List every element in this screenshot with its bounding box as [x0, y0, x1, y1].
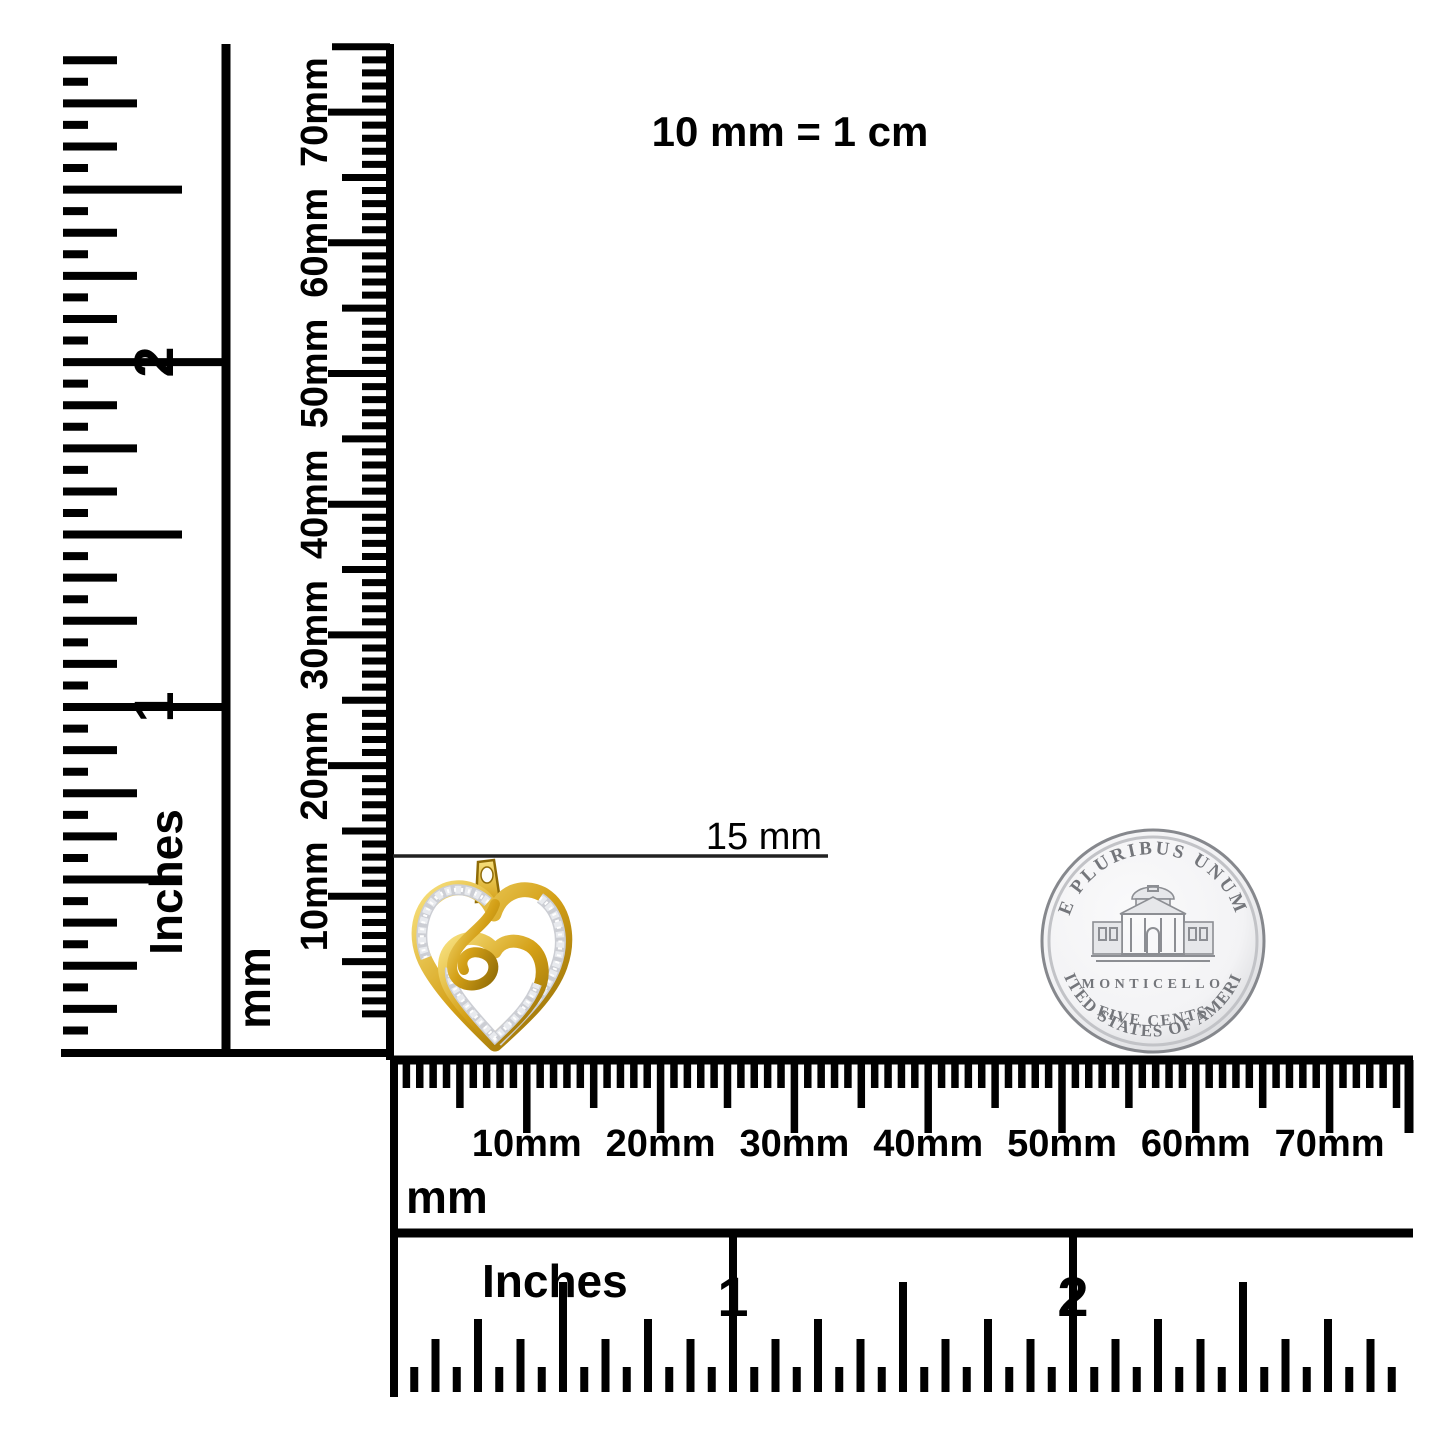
gold-diamond-heart-pendant [419, 860, 565, 1044]
bottom-inches-unit-label: Inches [482, 1255, 628, 1307]
bottom-inch-number: 1 [717, 1265, 748, 1328]
bottom-mm-label: 40mm [873, 1123, 983, 1165]
pendant-bail-hole [481, 867, 493, 883]
left-mm-label: 20mm [294, 711, 336, 821]
measurement-diagram: 12 Inches 10mm20mm30mm40mm50mm60mm70mm m… [0, 0, 1445, 1445]
left-mm-label: 70mm [294, 57, 336, 167]
bottom-mm-label: 60mm [1141, 1123, 1251, 1165]
scale-note: 10 mm = 1 cm [652, 108, 929, 155]
left-mm-unit-label: mm [228, 947, 280, 1029]
bottom-mm-label: 10mm [472, 1123, 582, 1165]
bottom-mm-label: 20mm [606, 1123, 716, 1165]
ruler-left-mm: 10mm20mm30mm40mm50mm60mm70mm mm [228, 44, 390, 1060]
bottom-mm-label: 30mm [739, 1123, 849, 1165]
coin-building-label: MONTICELLO [1081, 977, 1224, 992]
bottom-mm-label: 70mm [1275, 1123, 1385, 1165]
ruler-bottom-mm: 10mm20mm30mm40mm50mm60mm70mm mm [391, 1056, 1413, 1234]
left-mm-label: 60mm [294, 188, 336, 298]
bottom-mm-labels: 10mm20mm30mm40mm50mm60mm70mm [472, 1123, 1385, 1165]
left-mm-label: 40mm [294, 449, 336, 559]
bottom-mm-unit-label: mm [406, 1171, 488, 1223]
left-inch-number: 1 [122, 691, 185, 722]
left-mm-labels: 10mm20mm30mm40mm50mm60mm70mm [294, 57, 336, 951]
left-mm-label: 10mm [294, 841, 336, 951]
left-mm-tick-marks [328, 47, 390, 1014]
left-mm-label: 30mm [294, 580, 336, 690]
left-mm-label: 50mm [294, 319, 336, 429]
left-inches-unit-label: Inches [140, 809, 192, 955]
ruler-bottom-inches: 12 Inches [391, 1233, 1413, 1397]
pendant-width-label: 15 mm [706, 816, 822, 858]
bottom-mm-label: 50mm [1007, 1123, 1117, 1165]
left-inch-number: 2 [122, 347, 185, 378]
scene-canvas: 12 Inches 10mm20mm30mm40mm50mm60mm70mm m… [0, 0, 1445, 1445]
pendant-width-annotation: 15 mm [393, 816, 828, 858]
ruler-left-inches: 12 Inches [61, 44, 394, 1057]
bottom-inch-number: 2 [1057, 1265, 1088, 1328]
